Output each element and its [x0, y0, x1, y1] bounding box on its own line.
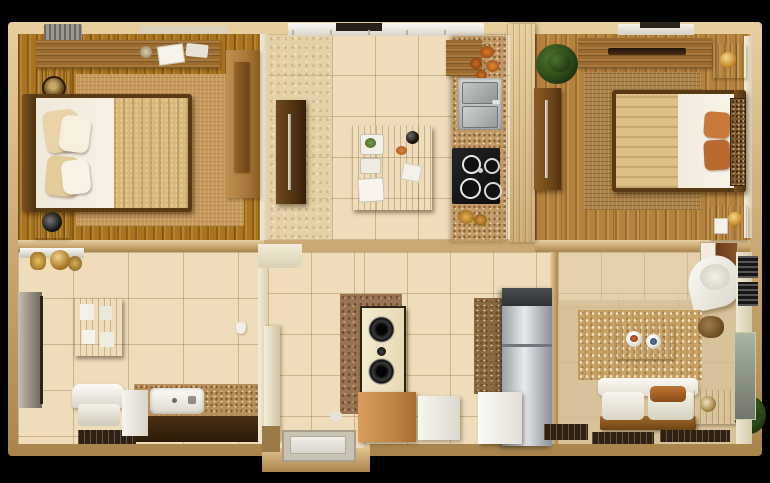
burner-2	[484, 158, 500, 174]
bedroom1-bed	[22, 94, 192, 212]
bath-bottle-3	[68, 256, 82, 271]
bedroom2-plant-frond	[548, 52, 570, 72]
bath-cabinet-item-1	[80, 304, 94, 320]
counter-decor-gold-2	[474, 214, 487, 226]
window-kitchen-mullions	[292, 30, 480, 35]
copper-decor-3	[486, 60, 499, 72]
corner-armchair-cushion	[700, 264, 730, 290]
utility-white-box	[418, 396, 460, 440]
living-floor-mat-1	[592, 432, 654, 444]
bedroom2-side-wardrobe-handle	[545, 100, 548, 178]
bath-sink-drain	[172, 398, 177, 403]
bedroom2-top-wardrobe-handle	[608, 48, 686, 55]
bath-white-panel	[122, 390, 148, 436]
ac-vent-bedroom1	[44, 24, 82, 41]
bed2-pillow-1	[703, 111, 731, 139]
bedroom1-wardrobe-door	[234, 62, 249, 172]
nightstand2-paper	[714, 218, 728, 234]
copper-decor-1	[480, 46, 494, 58]
dresser-papers	[157, 43, 185, 65]
wall-bedroom1-hallway	[260, 34, 268, 240]
bed1-blanket	[114, 98, 188, 208]
bath-mirror-frame	[40, 296, 43, 404]
nightstand-black-item	[42, 212, 62, 232]
sofa-cushion-1	[602, 392, 644, 420]
cooktop-knob	[478, 168, 483, 173]
island-bottle	[406, 131, 419, 144]
bed1-pillow-2	[58, 114, 92, 153]
floorplan-render	[0, 0, 770, 483]
island-napkin	[400, 162, 422, 183]
living-decor-driftwood	[698, 316, 724, 338]
bath-vanity-front	[134, 416, 258, 442]
nightstand2-lamp-bottom	[728, 212, 742, 226]
side-cabinet-decor	[700, 396, 716, 412]
wall-trim-bedroom1	[140, 26, 228, 34]
bath-toilet-seat	[78, 404, 120, 426]
ac-vent-grille-top	[738, 256, 758, 278]
utility-small-item	[330, 412, 342, 422]
glass-wall-panel	[734, 332, 756, 420]
entry-doormat-inner	[290, 436, 346, 454]
bed1-pillow-4	[60, 159, 91, 196]
bed1-headboard	[22, 94, 36, 212]
refrigerator-top	[502, 288, 552, 306]
bed2-pillow-2	[703, 139, 731, 170]
coffee-table-plate-1-food	[630, 335, 638, 342]
living-floor-mat-2	[660, 430, 730, 442]
bed2-headboard-mosaic	[730, 98, 746, 186]
entry-white-cabinet	[258, 244, 302, 268]
dresser-decor	[140, 46, 152, 58]
dresser-tray	[185, 43, 208, 58]
speaker-base-cabinet	[358, 392, 416, 442]
burner-4	[484, 182, 502, 200]
hallway-cabinet-handle	[288, 114, 291, 190]
refrigerator-divider	[502, 344, 552, 347]
window-bedroom2-pane	[640, 22, 680, 28]
island-plate-3	[357, 177, 385, 203]
fridge-side-cabinet	[474, 298, 504, 394]
speaker-tweeter	[377, 347, 386, 356]
bath-cabinet-item-3	[82, 330, 95, 344]
bath-cabinet-item-2	[100, 306, 112, 320]
entry-step	[262, 426, 280, 452]
nightstand2-lamp-top	[720, 52, 736, 68]
sink-basin-2	[462, 106, 498, 128]
living-floor-mat-3	[544, 424, 588, 440]
bedroom2-bed	[612, 90, 746, 192]
coffee-table	[616, 325, 674, 359]
bath-mirror	[18, 292, 42, 408]
counter-decor-gold	[458, 210, 474, 224]
entry-pillar	[264, 326, 280, 442]
bath-bottle-2	[50, 250, 70, 270]
hallway-cabinet	[276, 100, 306, 204]
pantry-column	[507, 24, 535, 242]
sofa-orange-pillow	[650, 386, 686, 402]
sofa	[598, 378, 698, 432]
bath-bottle-1	[30, 252, 46, 270]
speaker-driver-bottom	[368, 358, 395, 385]
copper-decor-2	[470, 58, 482, 69]
ac-vent-grille-bottom	[738, 282, 758, 306]
island-fruit	[396, 146, 407, 155]
speaker-driver-top	[368, 316, 395, 343]
fridge-white-door	[478, 392, 522, 444]
burner-3	[460, 178, 481, 199]
bed2-blanket	[616, 94, 678, 188]
island-plate-2	[360, 158, 381, 174]
island-plate-1-food	[365, 138, 376, 148]
bath-wall-hook	[236, 322, 246, 334]
sink-faucet	[492, 100, 500, 104]
bath-faucet	[188, 396, 196, 404]
coffee-table-plate-2-food	[650, 338, 657, 345]
bath-cabinet-item-4	[100, 332, 114, 347]
